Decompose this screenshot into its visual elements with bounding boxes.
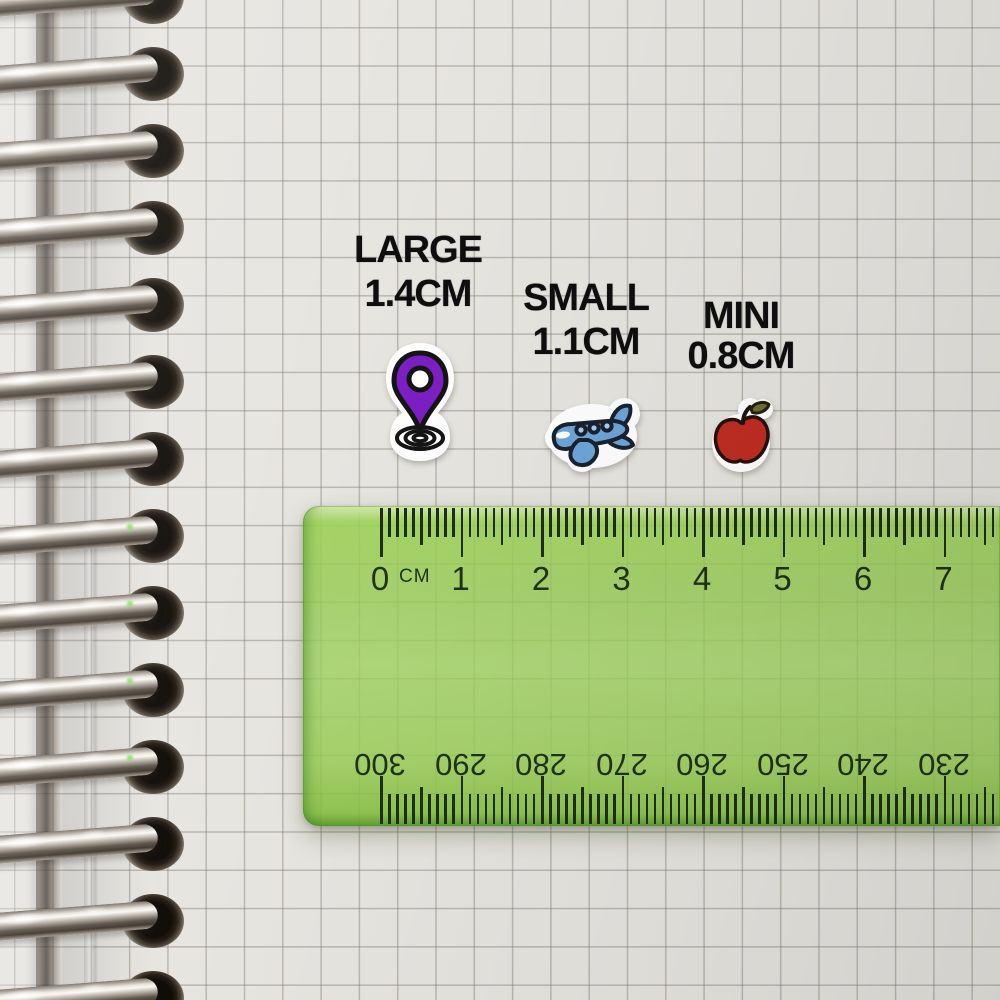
- ruler-tick: [436, 794, 439, 824]
- ruler-tick: [823, 508, 826, 545]
- size-label-value: 0.8CM: [688, 336, 795, 376]
- ruler-tick: [469, 508, 472, 537]
- ruler-tick: [758, 794, 761, 824]
- ruler-tick: [428, 508, 431, 537]
- ruler-tick: [630, 794, 633, 824]
- ruler-tick: [678, 794, 681, 824]
- ruler-tick: [380, 508, 383, 557]
- ruler-tick: [444, 794, 447, 824]
- ruler-tick: [766, 508, 769, 537]
- ruler-tick: [613, 794, 616, 824]
- ruler-tick: [968, 794, 971, 824]
- ruler-tick: [879, 508, 882, 537]
- ruler-tick: [935, 794, 938, 824]
- ruler-tick: [589, 794, 592, 824]
- ruler-tick: [807, 508, 810, 537]
- ruler-tick: [839, 508, 842, 537]
- ruler-tick: [622, 508, 625, 557]
- ruler-tick: [461, 508, 464, 557]
- ruler-tick: [654, 794, 657, 824]
- ruler-tick: [517, 794, 520, 824]
- ruler-tick: [847, 508, 850, 537]
- ruler-tick: [968, 508, 971, 537]
- ruler-tick: [605, 508, 608, 537]
- ruler-tick: [404, 794, 407, 824]
- ruler-tick: [855, 508, 858, 537]
- ruler-tick: [525, 794, 528, 824]
- ruler-tick: [919, 508, 922, 537]
- ruler-tick: [412, 794, 415, 824]
- ruler-tick: [589, 508, 592, 537]
- ruler-tick: [992, 508, 995, 537]
- ruler-tick: [887, 794, 890, 824]
- ruler-tick: [525, 508, 528, 537]
- ruler-tick: [501, 787, 504, 824]
- ruler-tick: [895, 508, 898, 537]
- ruler-tick: [517, 508, 520, 537]
- ruler-tick: [630, 508, 633, 537]
- ruler-tick: [911, 508, 914, 537]
- ruler-tick: [984, 787, 987, 824]
- ruler-tick: [396, 794, 399, 824]
- ruler-tick: [573, 794, 576, 824]
- ruler-tick: [557, 508, 560, 537]
- ruler-tick: [734, 794, 737, 824]
- ruler-tick: [895, 794, 898, 824]
- ruler-tick: [927, 794, 930, 824]
- ruler-tick: [581, 508, 584, 545]
- ruler-cm-number: 1: [426, 560, 496, 598]
- size-label-large: LARGE 1.4CM: [354, 228, 482, 316]
- ruler-tick: [702, 508, 705, 557]
- ruler-tick: [654, 508, 657, 537]
- ruler-tick: [533, 794, 536, 824]
- ruler-tick: [774, 794, 777, 824]
- spiral-binding: [0, 0, 210, 1000]
- ruler-tick: [863, 508, 866, 557]
- ruler-tick: [420, 787, 423, 824]
- ruler-tick: [944, 508, 947, 557]
- ruler-tick: [420, 508, 423, 545]
- ruler-tick: [791, 508, 794, 537]
- size-label-value: 1.1CM: [523, 320, 649, 364]
- ruler-tick: [444, 508, 447, 537]
- ruler-tick: [952, 794, 955, 824]
- ruler-tick: [774, 508, 777, 537]
- ruler-cm-number: 2: [506, 560, 576, 598]
- ruler-tick: [750, 508, 753, 537]
- size-label-title: LARGE: [354, 228, 482, 272]
- ruler-tick: [935, 508, 938, 537]
- ruler-tick: [541, 508, 544, 557]
- apple-sticker: [708, 397, 776, 478]
- ruler-tick: [509, 508, 512, 537]
- ruler-tick: [823, 787, 826, 824]
- ruler-tick: [919, 794, 922, 824]
- ruler-tick: [799, 508, 802, 537]
- size-label-title: MINI: [688, 296, 795, 336]
- ruler-tick: [597, 508, 600, 537]
- size-label-value: 1.4CM: [354, 272, 482, 316]
- ruler-tick: [694, 794, 697, 824]
- ruler-tick: [670, 508, 673, 537]
- ruler-tick: [839, 794, 842, 824]
- ruler-tick: [742, 508, 745, 545]
- ruler-tick: [485, 508, 488, 537]
- ruler-cm-number: 4: [667, 560, 737, 598]
- ruler-tick: [879, 794, 882, 824]
- ruler-tick: [509, 794, 512, 824]
- ruler-tick: [863, 776, 866, 824]
- ruler-tick: [646, 794, 649, 824]
- ruler-tick: [992, 794, 995, 824]
- ruler-tick: [807, 794, 810, 824]
- airplane-sticker: [544, 398, 642, 477]
- size-label-mini: MINI 0.8CM: [688, 296, 795, 376]
- ruler-tick: [718, 794, 721, 824]
- ruler-tick: [436, 508, 439, 537]
- ruler-tick: [815, 794, 818, 824]
- ruler-tick: [710, 508, 713, 537]
- ruler-tick: [452, 794, 455, 824]
- ruler-tick: [613, 508, 616, 537]
- ruler-tick: [783, 776, 786, 824]
- ruler-tick: [452, 508, 455, 537]
- ruler-tick: [726, 508, 729, 537]
- ruler-cm-number: 3: [587, 560, 657, 598]
- ruler-tick: [404, 508, 407, 537]
- apple-icon: [708, 397, 776, 473]
- ruler-tick: [766, 794, 769, 824]
- ruler-tick: [573, 508, 576, 537]
- ruler-tick: [493, 794, 496, 824]
- ruler-tick: [388, 794, 391, 824]
- ruler-cm-number: 6: [828, 560, 898, 598]
- ruler-tick: [477, 794, 480, 824]
- ruler-tick: [742, 787, 745, 824]
- ruler-tick: [887, 508, 890, 537]
- green-ruler: 01234567 CM 300290280270260250240230: [303, 506, 1000, 826]
- metal-ring-icon: [0, 977, 159, 1000]
- ruler-tick: [605, 794, 608, 824]
- ruler-tick: [678, 508, 681, 537]
- ruler-tick: [549, 794, 552, 824]
- ruler-tick: [855, 794, 858, 824]
- ruler-tick: [871, 508, 874, 537]
- ruler-tick: [815, 508, 818, 537]
- ruler-tick: [976, 508, 979, 537]
- ruler-tick: [976, 794, 979, 824]
- ruler-tick: [944, 776, 947, 824]
- location-pin-icon: [382, 341, 458, 463]
- ruler-tick: [638, 508, 641, 537]
- ruler-tick: [694, 508, 697, 537]
- ruler-tick: [960, 508, 963, 537]
- ruler-tick: [581, 787, 584, 824]
- ruler-tick: [565, 508, 568, 537]
- ruler-tick: [927, 508, 930, 537]
- ruler-tick: [903, 787, 906, 824]
- ruler-cm-number: 7: [909, 560, 979, 598]
- ruler-tick: [783, 508, 786, 557]
- ruler-tick: [670, 794, 673, 824]
- notebook-photo: LARGE 1.4CM SMALL 1.1CM MINI 0.8CM: [0, 0, 1000, 1000]
- ruler-tick: [686, 508, 689, 537]
- ruler-tick: [952, 508, 955, 537]
- ruler-tick: [702, 776, 705, 824]
- ruler-tick: [710, 794, 713, 824]
- airplane-icon: [544, 398, 642, 472]
- ruler-tick: [388, 508, 391, 537]
- ruler-tick: [847, 794, 850, 824]
- ruler-tick: [726, 794, 729, 824]
- size-label-small: SMALL 1.1CM: [523, 276, 649, 364]
- ruler-tick: [960, 794, 963, 824]
- ruler-tick: [396, 508, 399, 537]
- ruler-tick: [380, 776, 383, 824]
- ruler-tick: [533, 508, 536, 537]
- ruler-tick: [549, 508, 552, 537]
- ruler-unit-label: CM: [399, 566, 431, 588]
- ruler-tick: [871, 794, 874, 824]
- ruler-tick: [831, 508, 834, 537]
- ruler-tick: [903, 508, 906, 545]
- ruler-tick: [477, 508, 480, 537]
- ruler-tick: [461, 776, 464, 824]
- ruler-tick: [469, 794, 472, 824]
- ruler-tick: [412, 508, 415, 537]
- ruler-tick: [911, 794, 914, 824]
- ruler-cm-number: 5: [748, 560, 818, 598]
- ruler-tick: [501, 508, 504, 545]
- ruler-tick: [493, 508, 496, 537]
- location-pin-sticker: [382, 341, 458, 468]
- ruler-tick: [565, 794, 568, 824]
- ruler-tick: [799, 794, 802, 824]
- ruler-tick: [750, 794, 753, 824]
- size-label-title: SMALL: [523, 276, 649, 320]
- ruler-tick: [758, 508, 761, 537]
- ruler-tick: [662, 787, 665, 824]
- ruler-tick: [597, 794, 600, 824]
- ruler-tick: [646, 508, 649, 537]
- ruler-tick: [686, 794, 689, 824]
- ruler-tick: [638, 794, 641, 824]
- ruler-tick: [662, 508, 665, 545]
- ruler-tick: [734, 508, 737, 537]
- ruler-tick: [541, 776, 544, 824]
- ruler-tick: [485, 794, 488, 824]
- ruler-tick: [984, 508, 987, 545]
- ruler-tick: [831, 794, 834, 824]
- ruler-tick: [557, 794, 560, 824]
- ruler-tick: [718, 508, 721, 537]
- ruler-tick: [622, 776, 625, 824]
- ruler-tick: [428, 794, 431, 824]
- ruler-tick: [791, 794, 794, 824]
